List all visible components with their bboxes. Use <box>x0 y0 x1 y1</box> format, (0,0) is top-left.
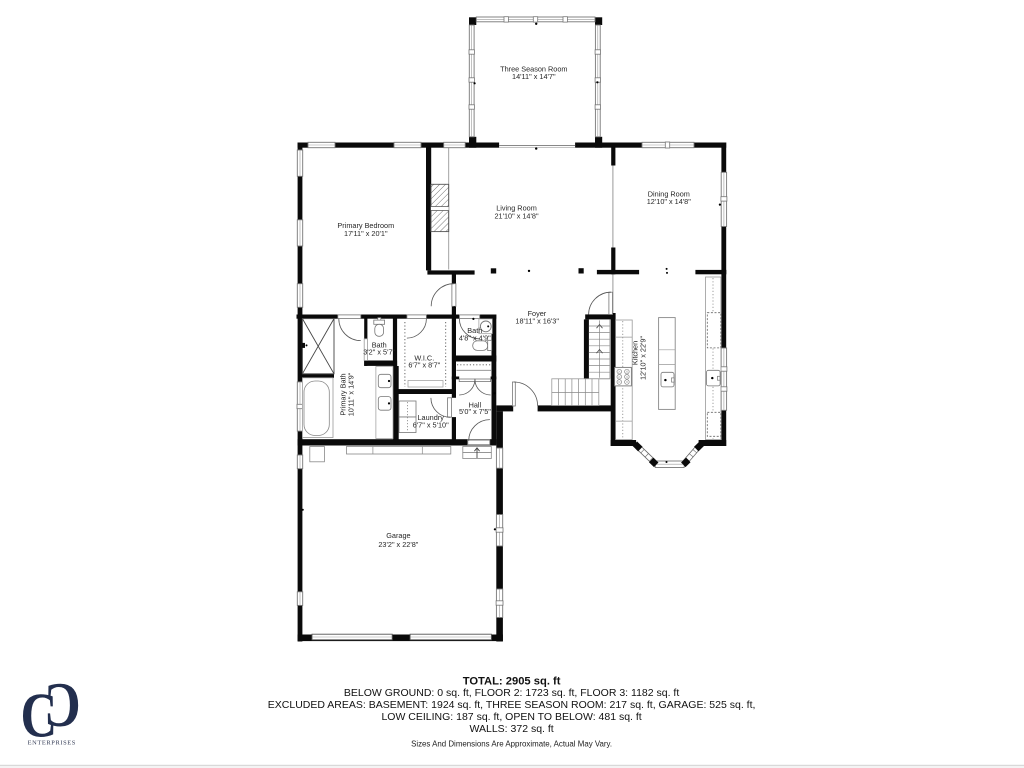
svg-text:C: C <box>44 671 81 741</box>
svg-text:ENTERPRISES: ENTERPRISES <box>28 740 76 747</box>
svg-text:Sizes And Dimensions Are Appro: Sizes And Dimensions Are Approximate, Ac… <box>411 739 612 748</box>
svg-text:12'10" x 22'9": 12'10" x 22'9" <box>639 336 648 380</box>
svg-text:21'10" x 14'8": 21'10" x 14'8" <box>494 211 538 220</box>
svg-text:10'11" x 14'9": 10'11" x 14'9" <box>347 372 356 416</box>
svg-text:EXCLUDED AREAS: BASEMENT: 1924: EXCLUDED AREAS: BASEMENT: 1924 sq. ft, T… <box>268 699 756 711</box>
svg-text:14'11" x 14'7": 14'11" x 14'7" <box>512 72 556 81</box>
svg-text:4'8" x 4'9": 4'8" x 4'9" <box>459 333 491 342</box>
svg-text:BELOW GROUND: 0 sq. ft, FLOOR: BELOW GROUND: 0 sq. ft, FLOOR 2: 1723 sq… <box>344 687 679 699</box>
svg-text:5'0" x 7'5": 5'0" x 7'5" <box>459 407 491 416</box>
svg-text:12'10" x 14'8": 12'10" x 14'8" <box>647 197 691 206</box>
svg-text:23'2" x 22'8": 23'2" x 22'8" <box>378 540 418 549</box>
svg-text:6'7" x 5'10": 6'7" x 5'10" <box>413 421 449 430</box>
svg-text:18'11" x 16'3": 18'11" x 16'3" <box>515 317 559 326</box>
svg-text:LOW CEILING: 187 sq. ft, OPEN: LOW CEILING: 187 sq. ft, OPEN TO BELOW: … <box>381 711 641 723</box>
svg-text:3'2" x 5'7": 3'2" x 5'7" <box>363 347 395 356</box>
svg-text:17'11" x 20'1": 17'11" x 20'1" <box>344 229 388 238</box>
svg-text:TOTAL: 2905 sq. ft: TOTAL: 2905 sq. ft <box>463 675 561 687</box>
svg-text:WALLS: 372 sq. ft: WALLS: 372 sq. ft <box>469 723 553 735</box>
svg-text:Garage: Garage <box>386 531 410 540</box>
svg-text:6'7" x 8'7": 6'7" x 8'7" <box>408 360 440 369</box>
